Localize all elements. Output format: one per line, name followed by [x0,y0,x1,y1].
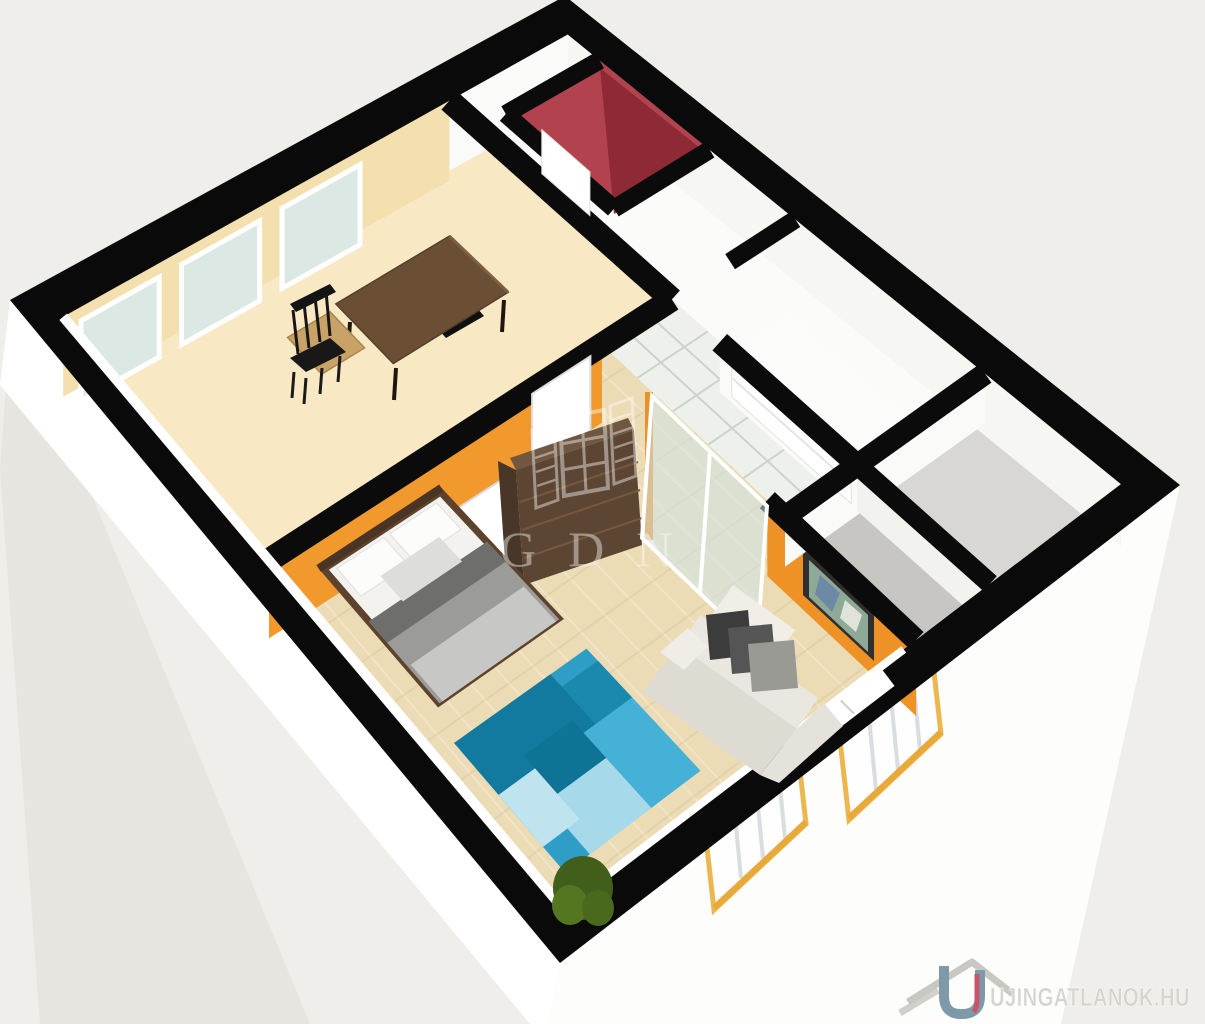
site-logo-text: UJINGATLANOK.HU [990,982,1190,1012]
desk-leg [394,368,396,400]
floor-plan-image: GDN UJINGATLANOK.HU [0,0,1205,1024]
chair-leg [304,378,306,404]
chair-leg [338,356,340,382]
gdn-watermark-text: GDN [500,521,704,577]
chair-leg [320,368,322,394]
plant [582,890,614,926]
desk-leg [502,300,504,332]
chair-leg [292,372,294,398]
sofa-pillow [748,640,798,692]
